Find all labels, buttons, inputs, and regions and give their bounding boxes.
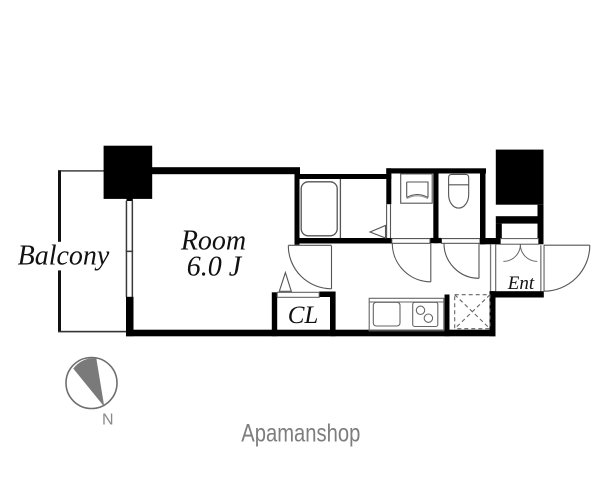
svg-text:Balcony: Balcony <box>18 241 110 272</box>
svg-text:6.0 J: 6.0 J <box>187 251 243 282</box>
svg-text:Ent: Ent <box>507 273 535 294</box>
svg-text:CL: CL <box>288 302 319 329</box>
svg-text:N: N <box>102 411 114 428</box>
svg-text:Apamanshop: Apamanshop <box>241 420 360 448</box>
